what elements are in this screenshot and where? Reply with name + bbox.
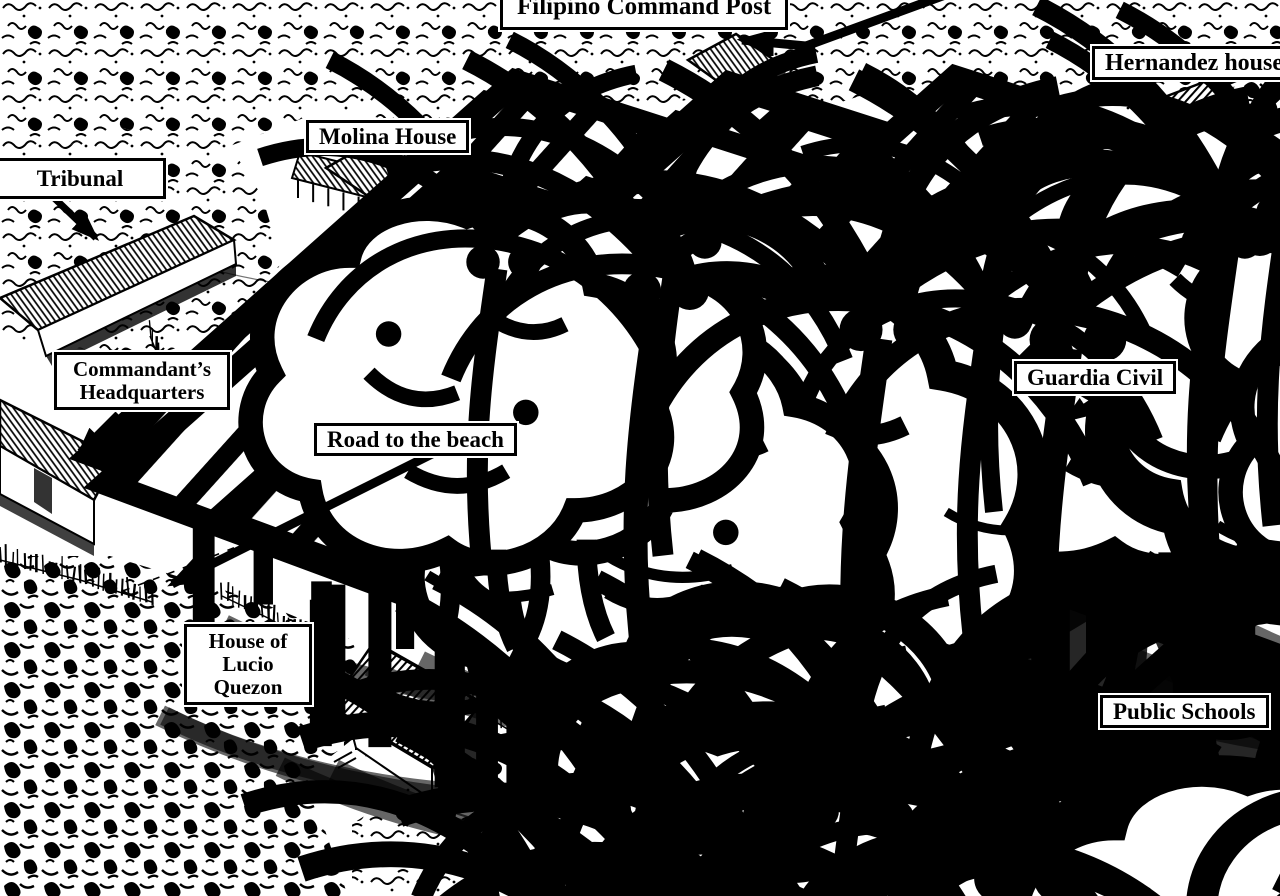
label-commandants-headquarters: Commandant’s Headquarters [54,352,230,410]
label-tribunal: Tribunal [0,158,166,199]
label-guardia-civil: Guardia Civil [1014,361,1176,394]
illustrated-map: Filipino Command Post Hernandez house Mo… [0,0,1280,896]
label-filipino-command-post: Filipino Command Post [500,0,788,30]
label-public-schools: Public Schools [1100,695,1269,728]
label-molina-house: Molina House [306,120,469,153]
trees-and-huts [95,6,1280,896]
label-road-to-the-beach: Road to the beach [314,423,517,456]
label-hernandez-house: Hernandez house [1092,46,1280,80]
map-drawing [0,0,1280,896]
label-house-of-lucio-quezon: House of Lucio Quezon [184,624,312,705]
